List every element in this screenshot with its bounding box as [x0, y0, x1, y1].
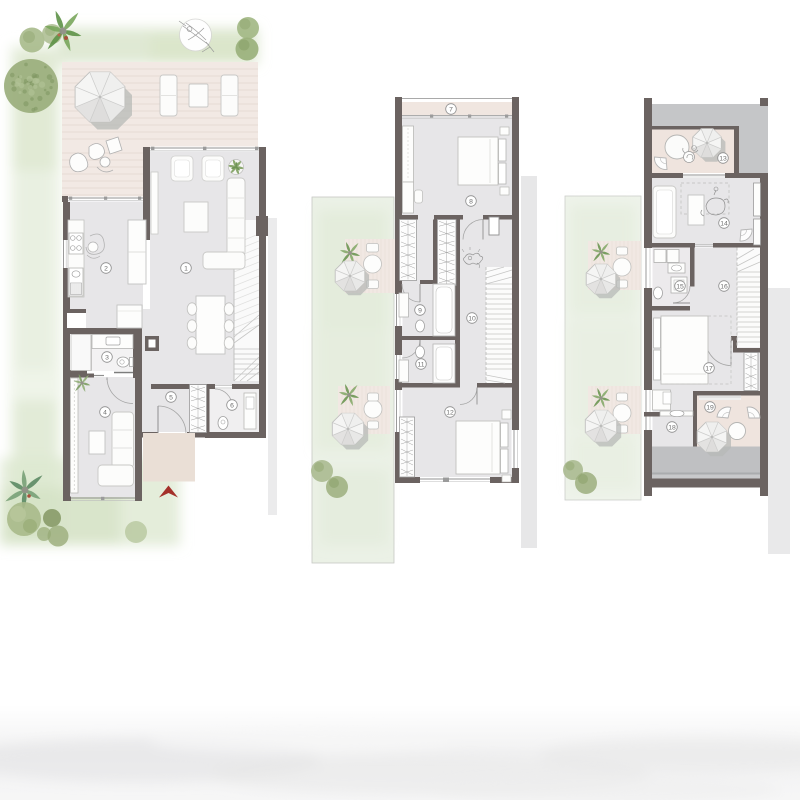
svg-text:16: 16 — [720, 283, 728, 290]
svg-text:13: 13 — [719, 155, 727, 162]
svg-text:5: 5 — [169, 394, 173, 401]
svg-text:12: 12 — [446, 409, 454, 416]
svg-text:9: 9 — [418, 307, 422, 314]
svg-text:3: 3 — [105, 354, 109, 361]
svg-text:11: 11 — [417, 361, 424, 368]
svg-text:18: 18 — [668, 424, 676, 431]
svg-text:1: 1 — [184, 265, 188, 272]
svg-text:2: 2 — [104, 265, 108, 272]
svg-text:10: 10 — [468, 315, 476, 322]
svg-text:4: 4 — [103, 409, 107, 416]
svg-text:14: 14 — [720, 220, 728, 227]
svg-text:7: 7 — [449, 106, 453, 113]
svg-text:19: 19 — [706, 404, 714, 411]
svg-text:15: 15 — [676, 283, 684, 290]
svg-text:8: 8 — [469, 198, 473, 205]
svg-text:17: 17 — [705, 365, 713, 372]
svg-text:6: 6 — [230, 402, 234, 409]
